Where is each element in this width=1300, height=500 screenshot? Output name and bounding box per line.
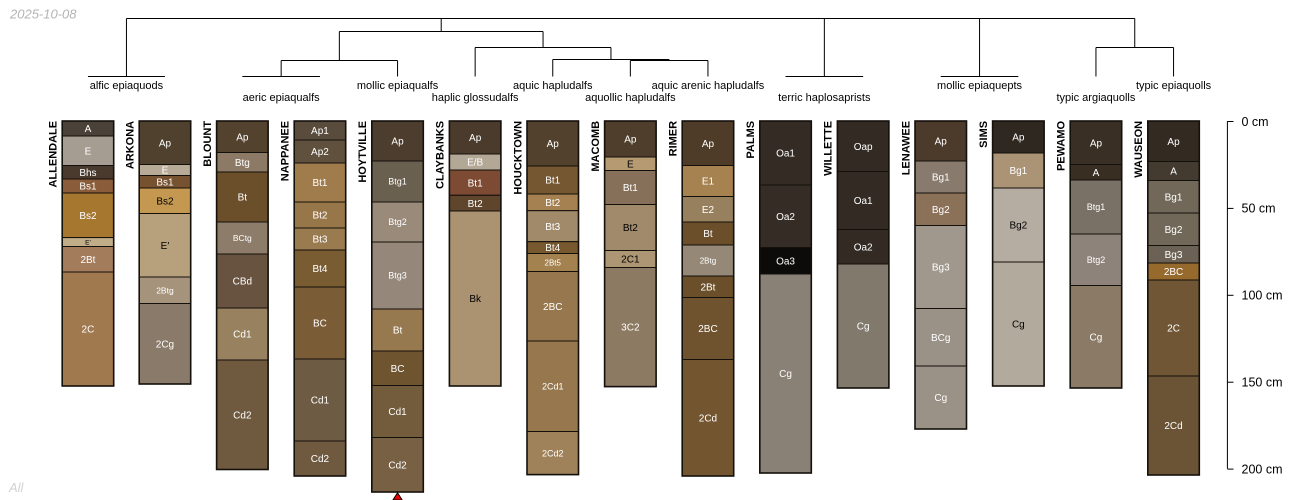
- svg-text:haplic glossudalfs: haplic glossudalfs: [432, 92, 519, 104]
- svg-text:typic argiaquolls: typic argiaquolls: [1057, 92, 1136, 104]
- svg-text:BLOUNT: BLOUNT: [202, 121, 214, 167]
- svg-text:Cg: Cg: [857, 322, 870, 333]
- svg-text:Bt1: Bt1: [312, 178, 327, 189]
- svg-text:E: E: [627, 159, 634, 170]
- svg-text:2BC: 2BC: [1164, 267, 1183, 278]
- svg-text:Ap: Ap: [1090, 138, 1103, 149]
- svg-text:NAPPANEE: NAPPANEE: [280, 121, 292, 181]
- svg-text:Ap: Ap: [547, 139, 560, 150]
- svg-text:Ap: Ap: [469, 133, 482, 144]
- svg-text:Btg2: Btg2: [388, 217, 407, 227]
- svg-text:HOYTVILLE: HOYTVILLE: [357, 121, 369, 183]
- svg-text:Bt: Bt: [703, 229, 713, 240]
- svg-text:A: A: [1093, 168, 1100, 179]
- svg-text:All: All: [8, 480, 25, 495]
- svg-text:Btg3: Btg3: [388, 271, 407, 281]
- svg-text:2Cd2: 2Cd2: [542, 448, 564, 458]
- svg-text:Bt1: Bt1: [623, 183, 638, 194]
- svg-text:mollic epiaquepts: mollic epiaquepts: [937, 80, 1022, 92]
- svg-text:50 cm: 50 cm: [1242, 202, 1276, 216]
- svg-text:2Cg: 2Cg: [156, 339, 174, 350]
- svg-text:2Bt: 2Bt: [80, 255, 95, 266]
- svg-text:2Bt: 2Bt: [700, 282, 715, 293]
- svg-text:CLAYBANKS: CLAYBANKS: [435, 121, 447, 189]
- svg-text:Btg2: Btg2: [1087, 255, 1106, 265]
- svg-text:Bt4: Bt4: [545, 243, 560, 254]
- svg-text:2025-10-08: 2025-10-08: [9, 7, 77, 22]
- svg-text:BCg: BCg: [931, 333, 950, 344]
- svg-text:Ap: Ap: [236, 132, 249, 143]
- svg-text:Bs2: Bs2: [156, 196, 174, 207]
- svg-text:Oa1: Oa1: [776, 149, 795, 160]
- svg-text:Ap: Ap: [1012, 133, 1025, 144]
- svg-text:Btg1: Btg1: [1087, 202, 1106, 212]
- svg-text:ALLENDALE: ALLENDALE: [48, 121, 60, 188]
- svg-text:E′: E′: [85, 239, 91, 246]
- svg-text:Ap: Ap: [624, 135, 637, 146]
- svg-text:Bt2: Bt2: [468, 199, 483, 210]
- svg-text:PEWAMO: PEWAMO: [1056, 120, 1068, 171]
- svg-text:150 cm: 150 cm: [1242, 376, 1283, 390]
- svg-text:Bs2: Bs2: [79, 211, 97, 222]
- svg-text:Cd2: Cd2: [388, 460, 407, 471]
- svg-text:BC: BC: [391, 364, 405, 375]
- svg-text:3C2: 3C2: [621, 323, 640, 334]
- svg-text:Oa1: Oa1: [854, 196, 873, 207]
- svg-text:0 cm: 0 cm: [1242, 115, 1269, 129]
- svg-text:A: A: [1170, 167, 1177, 178]
- svg-text:Oa3: Oa3: [776, 256, 795, 267]
- svg-text:PALMS: PALMS: [745, 121, 757, 159]
- svg-text:2C: 2C: [1167, 324, 1180, 335]
- svg-text:typic epiaquolls: typic epiaquolls: [1136, 80, 1212, 92]
- svg-text:Bg2: Bg2: [932, 205, 950, 216]
- svg-text:Oap: Oap: [854, 142, 873, 153]
- svg-text:Bt2: Bt2: [623, 223, 638, 234]
- svg-text:E: E: [162, 166, 169, 177]
- svg-text:E′: E′: [161, 241, 170, 252]
- svg-text:Bt3: Bt3: [312, 235, 327, 246]
- svg-text:aquollic hapludalfs: aquollic hapludalfs: [585, 92, 676, 104]
- svg-text:aquic hapludalfs: aquic hapludalfs: [513, 80, 593, 92]
- svg-text:2Cd: 2Cd: [699, 413, 717, 424]
- svg-text:Ap: Ap: [702, 139, 715, 150]
- svg-text:Bt1: Bt1: [468, 178, 483, 189]
- svg-text:2Btg: 2Btg: [156, 285, 174, 295]
- svg-text:Btg: Btg: [235, 158, 250, 169]
- svg-text:Cg: Cg: [934, 393, 947, 404]
- svg-text:Bg3: Bg3: [932, 263, 950, 274]
- svg-text:Bk: Bk: [469, 294, 482, 305]
- svg-text:aquic arenic hapludalfs: aquic arenic hapludalfs: [652, 80, 765, 92]
- svg-text:Bg2: Bg2: [1009, 221, 1027, 232]
- svg-text:2C1: 2C1: [621, 255, 640, 266]
- svg-text:E/B: E/B: [467, 158, 483, 169]
- svg-text:Bs1: Bs1: [156, 177, 174, 188]
- svg-text:Ap: Ap: [1167, 137, 1180, 148]
- svg-text:200 cm: 200 cm: [1242, 462, 1283, 476]
- svg-text:E: E: [85, 146, 92, 157]
- svg-text:Bt1: Bt1: [545, 176, 560, 187]
- svg-text:Bg1: Bg1: [1009, 166, 1027, 177]
- svg-text:Bt2: Bt2: [545, 198, 560, 209]
- svg-text:Oa2: Oa2: [854, 242, 873, 253]
- svg-text:Ap: Ap: [159, 138, 172, 149]
- svg-text:Bt3: Bt3: [545, 222, 560, 233]
- svg-text:Bg2: Bg2: [1165, 225, 1183, 236]
- svg-text:Cg: Cg: [1090, 332, 1103, 343]
- svg-text:Bt4: Bt4: [312, 264, 327, 275]
- svg-text:alfic epiaquods: alfic epiaquods: [90, 80, 164, 92]
- svg-text:Bt: Bt: [238, 193, 248, 204]
- svg-text:E2: E2: [702, 205, 715, 216]
- svg-text:LENAWEE: LENAWEE: [900, 121, 912, 175]
- svg-text:WAUSEON: WAUSEON: [1133, 121, 1145, 178]
- svg-text:Cd1: Cd1: [233, 330, 252, 341]
- svg-text:Ap: Ap: [391, 137, 404, 148]
- svg-text:100 cm: 100 cm: [1242, 289, 1283, 303]
- svg-text:WILLETTE: WILLETTE: [823, 121, 835, 176]
- svg-text:Cd1: Cd1: [388, 407, 407, 418]
- svg-text:2Cd: 2Cd: [1164, 421, 1182, 432]
- svg-text:Cd2: Cd2: [311, 454, 330, 465]
- svg-text:SIMS: SIMS: [978, 121, 990, 148]
- svg-text:Oa2: Oa2: [776, 212, 795, 223]
- svg-text:2C: 2C: [82, 325, 95, 336]
- svg-text:aeric epiaqualfs: aeric epiaqualfs: [243, 92, 321, 104]
- svg-text:2Btg: 2Btg: [700, 256, 716, 265]
- svg-text:BCtg: BCtg: [233, 233, 252, 243]
- svg-text:terric haplosaprists: terric haplosaprists: [778, 92, 871, 104]
- svg-text:Bg1: Bg1: [1165, 192, 1183, 203]
- svg-text:Bt2: Bt2: [312, 211, 327, 222]
- svg-text:Btg1: Btg1: [388, 177, 407, 187]
- svg-text:Cd2: Cd2: [233, 410, 252, 421]
- svg-text:Bhs: Bhs: [79, 168, 96, 179]
- svg-text:MACOMB: MACOMB: [590, 121, 602, 172]
- svg-text:Ap: Ap: [935, 137, 948, 148]
- svg-text:A: A: [85, 124, 92, 135]
- svg-text:Bt: Bt: [393, 326, 403, 337]
- svg-text:Ap1: Ap1: [311, 126, 329, 137]
- svg-text:RIMER: RIMER: [668, 121, 680, 156]
- svg-text:2Bt5: 2Bt5: [545, 258, 562, 267]
- svg-text:HOUCKTOWN: HOUCKTOWN: [512, 121, 524, 195]
- svg-text:BC: BC: [313, 319, 327, 330]
- svg-text:mollic epiaqualfs: mollic epiaqualfs: [357, 80, 439, 92]
- svg-text:Bs1: Bs1: [79, 182, 97, 193]
- svg-text:Cg: Cg: [779, 369, 792, 380]
- svg-text:CBd: CBd: [233, 277, 252, 288]
- svg-text:Cg: Cg: [1012, 320, 1025, 331]
- svg-text:E1: E1: [702, 177, 715, 188]
- svg-text:ARKONA: ARKONA: [125, 121, 137, 169]
- svg-text:2Cd1: 2Cd1: [542, 381, 564, 391]
- svg-text:Ap2: Ap2: [311, 147, 329, 158]
- svg-text:Bg1: Bg1: [932, 173, 950, 184]
- svg-text:2BC: 2BC: [543, 302, 562, 313]
- svg-text:2BC: 2BC: [698, 324, 717, 335]
- svg-text:Cd1: Cd1: [311, 396, 330, 407]
- svg-text:Bg3: Bg3: [1165, 250, 1183, 261]
